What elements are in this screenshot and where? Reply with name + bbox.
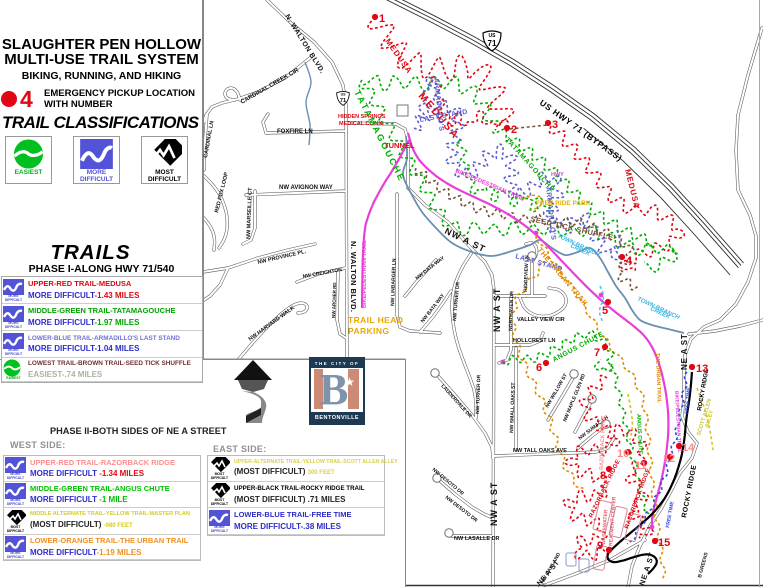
svg-text:14: 14 — [682, 442, 695, 454]
svg-text:MEDUSA: MEDUSA — [623, 168, 642, 210]
svg-text:11: 11 — [635, 460, 647, 472]
svg-text:RAZORBACK RIDGE: RAZORBACK RIDGE — [599, 415, 607, 470]
svg-text:B GREENS: B GREENS — [697, 551, 710, 578]
svg-text:HWY: HWY — [551, 172, 564, 178]
svg-text:1: 1 — [379, 13, 385, 25]
svg-text:NW A ST: NW A ST — [489, 482, 499, 526]
svg-text:CARDINAL CREEK CIR: CARDINAL CREEK CIR — [240, 67, 301, 105]
svg-text:71: 71 — [488, 39, 497, 48]
svg-text:FOXFIRE LN: FOXFIRE LN — [277, 129, 313, 135]
svg-text:7: 7 — [594, 347, 600, 359]
svg-text:10: 10 — [617, 448, 629, 460]
svg-text:LAUDERDALE DR: LAUDERDALE DR — [440, 383, 474, 419]
svg-text:NW LASALLE DR: NW LASALLE DR — [454, 536, 500, 542]
svg-text:NW DATA WAY: NW DATA WAY — [415, 255, 447, 282]
svg-text:3: 3 — [552, 119, 558, 131]
svg-text:NW AVIGNON WAY: NW AVIGNON WAY — [279, 185, 333, 191]
svg-text:13: 13 — [696, 363, 708, 375]
svg-text:NW TALL OAKS AVE: NW TALL OAKS AVE — [513, 448, 567, 454]
svg-text:MEDUSA: MEDUSA — [383, 37, 414, 75]
svg-text:4: 4 — [626, 255, 633, 267]
svg-text:NW BATA WAY: NW BATA WAY — [420, 292, 447, 324]
svg-text:THE URBAN TRAIL: THE URBAN TRAIL — [654, 353, 662, 404]
svg-text:8: 8 — [600, 470, 606, 482]
svg-text:BIKE/PEDESTRIAN TRAIL: BIKE/PEDESTRIAN TRAIL — [454, 168, 525, 203]
svg-text:2: 2 — [511, 124, 517, 136]
svg-text:71: 71 — [340, 98, 346, 104]
svg-text:NE A ST: NE A ST — [680, 333, 689, 370]
svg-text:N. WALTON BLVD.: N. WALTON BLVD. — [349, 241, 358, 312]
svg-text:ROCKY RIDGE: ROCKY RIDGE — [681, 464, 698, 518]
svg-text:12: 12 — [663, 453, 675, 465]
svg-text:FREE TIME: FREE TIME — [684, 386, 692, 414]
svg-text:NW HARVARD WALK: NW HARVARD WALK — [248, 305, 296, 342]
svg-text:PARKING: PARKING — [348, 326, 389, 336]
svg-text:TRAIL HEAD: TRAIL HEAD — [348, 315, 403, 325]
svg-text:9: 9 — [597, 540, 603, 552]
svg-text:NORTHAVEN DR: NORTHAVEN DR — [508, 291, 515, 331]
svg-text:5: 5 — [602, 305, 608, 317]
svg-text:VALLEY VIEW CIR: VALLEY VIEW CIR — [517, 317, 565, 323]
svg-text:ANGUS CHUTE: ANGUS CHUTE — [635, 414, 643, 455]
svg-text:TREATMENT CENTER: TREATMENT CENTER — [608, 496, 618, 549]
svg-text:US HWY 71 (BYPASS): US HWY 71 (BYPASS) — [538, 97, 625, 163]
svg-text:6: 6 — [536, 362, 542, 374]
svg-text:TATAMAGOUCHE: TATAMAGOUCHE — [504, 137, 557, 194]
svg-text:FREE TIME: FREE TIME — [665, 500, 676, 528]
svg-text:FREE RIDE PARK: FREE RIDE PARK — [536, 200, 591, 207]
svg-text:US: US — [341, 93, 347, 97]
svg-text:HIDDEN SPRINGS: HIDDEN SPRINGS — [338, 114, 386, 120]
svg-text:HOLLCREST LN: HOLLCREST LN — [513, 338, 555, 344]
svg-text:N. WALTON BLVD.: N. WALTON BLVD. — [283, 13, 325, 75]
svg-text:15: 15 — [658, 537, 670, 549]
svg-text:BIKE/PEDESTRIAN TRAIL: BIKE/PEDESTRIAN TRAIL — [362, 240, 368, 308]
svg-text:NW A ST: NW A ST — [492, 288, 502, 332]
svg-text:NW TURNER DR: NW TURNER DR — [475, 374, 482, 414]
svg-text:TATAMAGOUCHE: TATAMAGOUCHE — [352, 88, 407, 183]
